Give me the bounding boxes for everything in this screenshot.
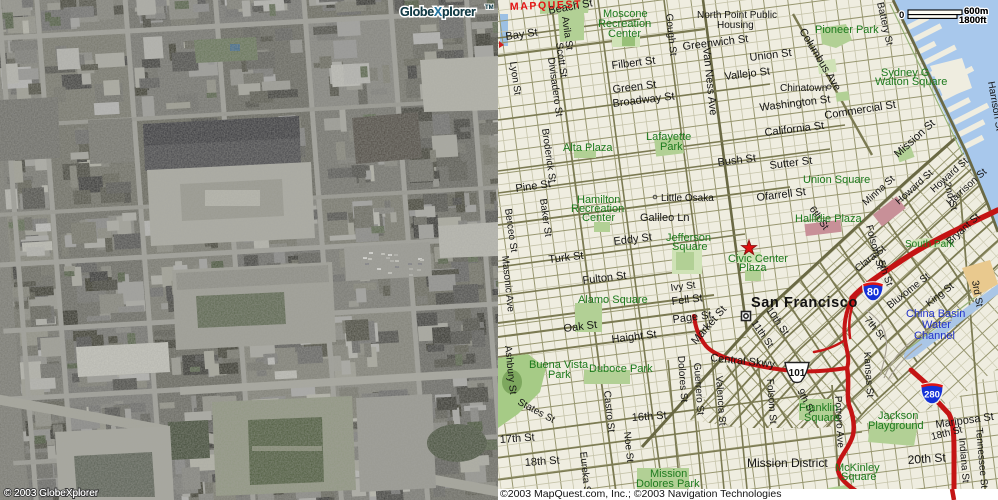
svg-text:South Park: South Park [905,239,955,250]
svg-text:17th St: 17th St [499,432,535,446]
svg-text:Center: Center [608,28,641,40]
svg-text:GlobeXplorer: GlobeXplorer [400,5,476,19]
svg-text:Little Osaka: Little Osaka [661,193,714,204]
svg-text:Square: Square [841,471,876,483]
svg-text:Pioneer Park: Pioneer Park [815,24,879,36]
svg-text:Center: Center [582,212,615,224]
svg-text:Alta Plaza: Alta Plaza [563,142,613,154]
svg-text:Square: Square [672,241,707,253]
svg-text:Galileo Ln: Galileo Ln [640,212,690,224]
svg-text:101: 101 [789,368,806,379]
svg-text:Square: Square [804,412,839,424]
svg-text:Hallidie Plaza: Hallidie Plaza [795,213,863,225]
svg-text:20th St: 20th St [907,450,947,467]
svg-text:Chinatown: Chinatown [780,83,827,94]
svg-text:16th St: 16th St [631,410,667,424]
svg-text:© 2003 GlobeXplorer: © 2003 GlobeXplorer [4,488,99,499]
svg-text:Channel: Channel [914,330,955,342]
svg-text:80: 80 [867,287,879,299]
svg-text:280: 280 [924,390,940,401]
svg-text:San Francisco: San Francisco [751,295,858,311]
svg-text:Housing: Housing [717,20,754,31]
svg-text:Walton Square: Walton Square [875,76,947,88]
svg-text:TM: TM [485,5,494,11]
svg-text:Park: Park [660,141,683,153]
svg-text:Playground: Playground [868,420,924,432]
svg-text:Alamo Square: Alamo Square [578,294,648,306]
svg-text:©2003 MapQuest.com, Inc.; ©200: ©2003 MapQuest.com, Inc.; ©2003 Navigati… [500,488,781,500]
svg-text:Duboce Park: Duboce Park [589,363,653,375]
svg-text:Union Square: Union Square [803,174,870,186]
svg-text:18th St: 18th St [524,455,560,469]
svg-text:0: 0 [899,10,904,21]
svg-text:1800ft: 1800ft [959,15,987,26]
svg-text:Park: Park [548,369,571,381]
svg-text:Mission District: Mission District [747,456,828,470]
svg-text:Plaza: Plaza [739,262,767,274]
